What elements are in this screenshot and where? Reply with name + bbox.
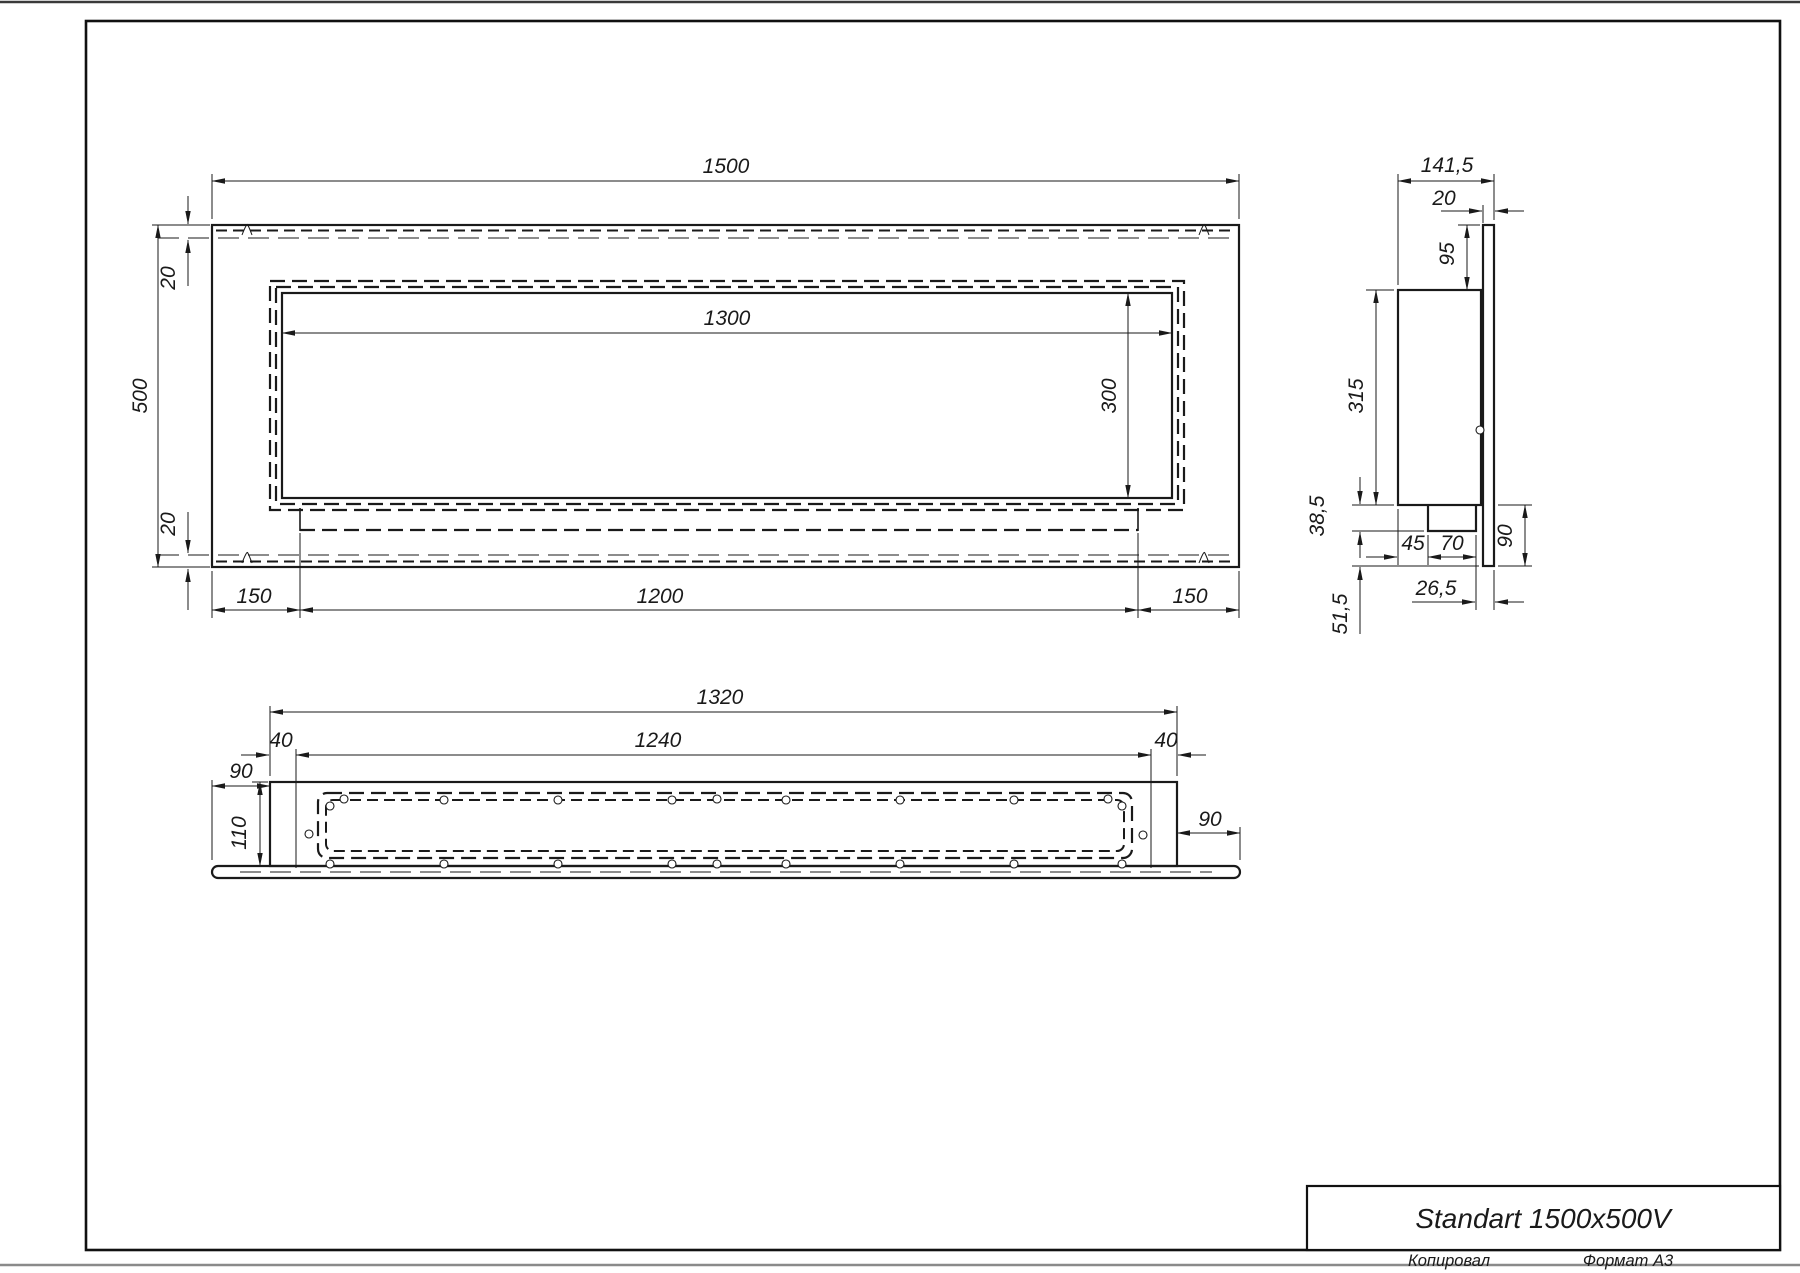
dim-panel-thickness: 20	[1431, 187, 1456, 210]
dim-top-offset: 95	[1436, 242, 1459, 266]
dim-front-bottom-band: 20	[157, 512, 180, 537]
front-outer-rect	[212, 225, 1239, 567]
copied-label: Копировал	[1408, 1252, 1490, 1270]
bottom-body	[270, 782, 1177, 866]
bottom-inner-hidden-2	[326, 800, 1124, 851]
side-view: 141,5 20 95 315 38,5 51,5 45 70	[1306, 154, 1532, 634]
dim-bottom-depth: 110	[228, 816, 251, 850]
dim-front-height: 500	[129, 378, 152, 413]
dim-front-top-band: 20	[157, 266, 180, 291]
format-label: Формат А3	[1583, 1252, 1674, 1270]
dim-front-width: 1500	[703, 155, 750, 178]
dim-right-inset: 40	[1154, 729, 1178, 752]
side-hole	[1476, 426, 1484, 434]
dim-panel-gap: 26,5	[1415, 577, 1457, 600]
dim-left-offset: 150	[236, 585, 271, 608]
side-body	[1398, 290, 1481, 505]
front-view: 1500 500 20 20 1300 300 150 1200 150	[129, 155, 1239, 618]
drawing-sheet: 1500 500 20 20 1300 300 150 1200 150	[0, 0, 1800, 1273]
cad-drawing: 1500 500 20 20 1300 300 150 1200 150	[0, 0, 1800, 1273]
dim-mount-width: 1240	[635, 729, 682, 752]
dim-bottom-body-width: 1320	[697, 686, 744, 709]
dim-flange-height: 90	[1494, 524, 1517, 548]
dim-left-inset: 40	[269, 729, 293, 752]
dim-burner-length: 1200	[637, 585, 684, 608]
dim-bracket-offset: 45	[1401, 532, 1425, 555]
dim-bracket-width: 70	[1440, 532, 1464, 555]
drawing-frame	[86, 21, 1780, 1250]
drawing-title: Standart 1500x500V	[1415, 1203, 1673, 1234]
side-bracket	[1428, 505, 1476, 531]
bottom-view: 1320 1240 40 40 90 90 110	[212, 686, 1240, 878]
dim-body-depth: 315	[1345, 378, 1368, 413]
side-front-panel	[1483, 225, 1494, 566]
dim-left-flange: 90	[229, 760, 253, 783]
dim-right-offset: 150	[1172, 585, 1207, 608]
dim-opening-height: 300	[1098, 378, 1121, 413]
dim-lower-drop: 51,5	[1329, 593, 1352, 634]
dim-bracket-drop: 38,5	[1306, 495, 1329, 536]
dim-right-flange: 90	[1198, 808, 1222, 831]
title-block: Standart 1500x500V Копировал Формат А3	[1307, 1186, 1780, 1270]
bottom-inner-hidden-1	[318, 793, 1132, 858]
dim-opening-width: 1300	[704, 307, 751, 330]
dim-side-depth: 141,5	[1421, 154, 1474, 177]
